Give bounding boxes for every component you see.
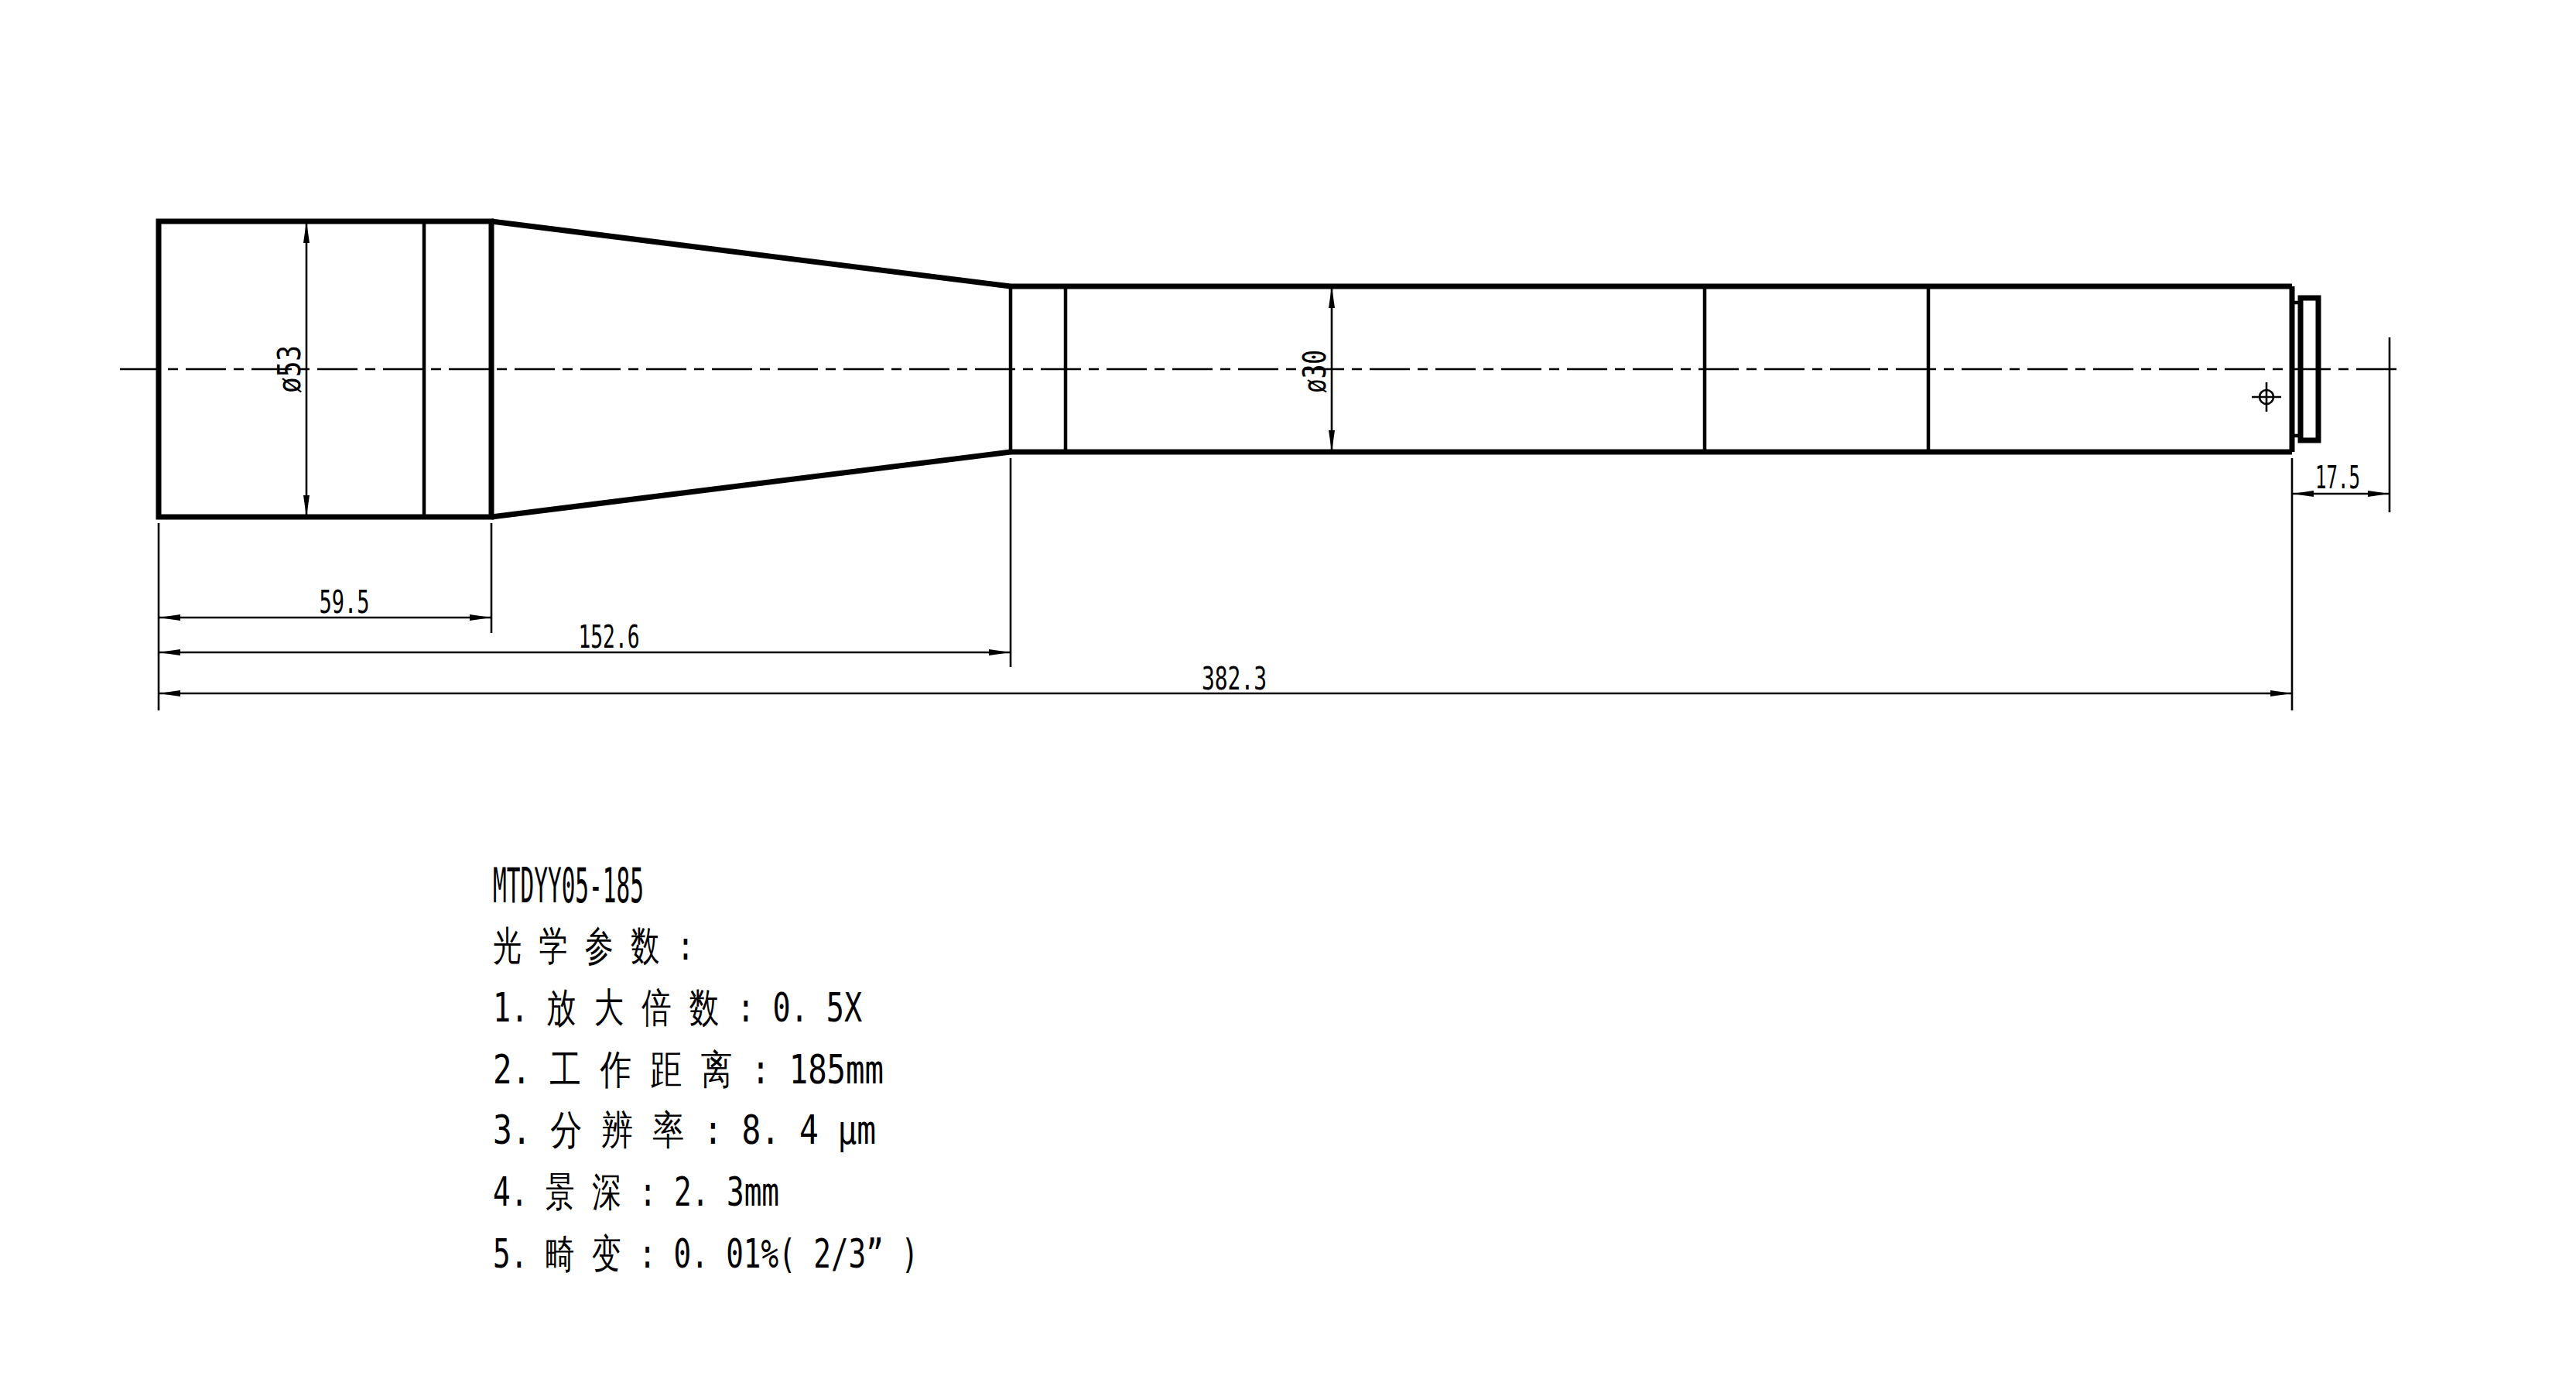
dimension-label-flange-to-image-plane: 17.5 (2315, 460, 2360, 495)
note-depth-of-field: 4. 景 深 : 2. 3mm (493, 1169, 779, 1215)
dimension-front-section-length: 59.5 (159, 584, 491, 620)
dimension-front-diameter: ø53 (272, 221, 307, 517)
dimension-flange-to-image-plane: 17.5 (2292, 460, 2390, 495)
notes-block: MTDYY05-185 光 学 参 数 : 1. 放 大 倍 数 : 0. 5X… (493, 857, 919, 1277)
dimension-barrel-diameter: ø30 (1297, 286, 1332, 452)
dimension-label-overall-length: 382.3 (1202, 661, 1267, 696)
notes-header: 光 学 参 数 : (493, 922, 694, 969)
datum-target-icon (2252, 382, 2281, 412)
dimension-front-taper-length: 152.6 (159, 619, 1011, 655)
lens-technical-drawing: ø53 ø30 59.5 152.6 382.3 17.5 MTDYY05-18… (0, 0, 2576, 1386)
part-number: MTDYY05-185 (493, 857, 644, 914)
taper-top-edge (491, 221, 1011, 286)
dimension-label-barrel-diameter: ø30 (1297, 350, 1332, 393)
dimension-label-front-diameter: ø53 (272, 345, 307, 393)
note-distortion: 5. 畸 变 : 0. 01%( 2/3” ) (493, 1230, 919, 1277)
taper-bottom-edge (491, 452, 1011, 517)
note-magnification: 1. 放 大 倍 数 : 0. 5X (493, 984, 862, 1031)
note-resolution: 3. 分 辨 率 : 8. 4 μm (493, 1107, 876, 1153)
note-working-distance: 2. 工 作 距 离 : 185mm (493, 1046, 884, 1093)
dimension-label-front-section-length: 59.5 (320, 584, 370, 620)
dimension-overall-length: 382.3 (159, 661, 2292, 696)
dimension-label-front-taper-length: 152.6 (579, 619, 640, 655)
drawing-canvas: ø53 ø30 59.5 152.6 382.3 17.5 MTDYY05-18… (0, 0, 2576, 1386)
